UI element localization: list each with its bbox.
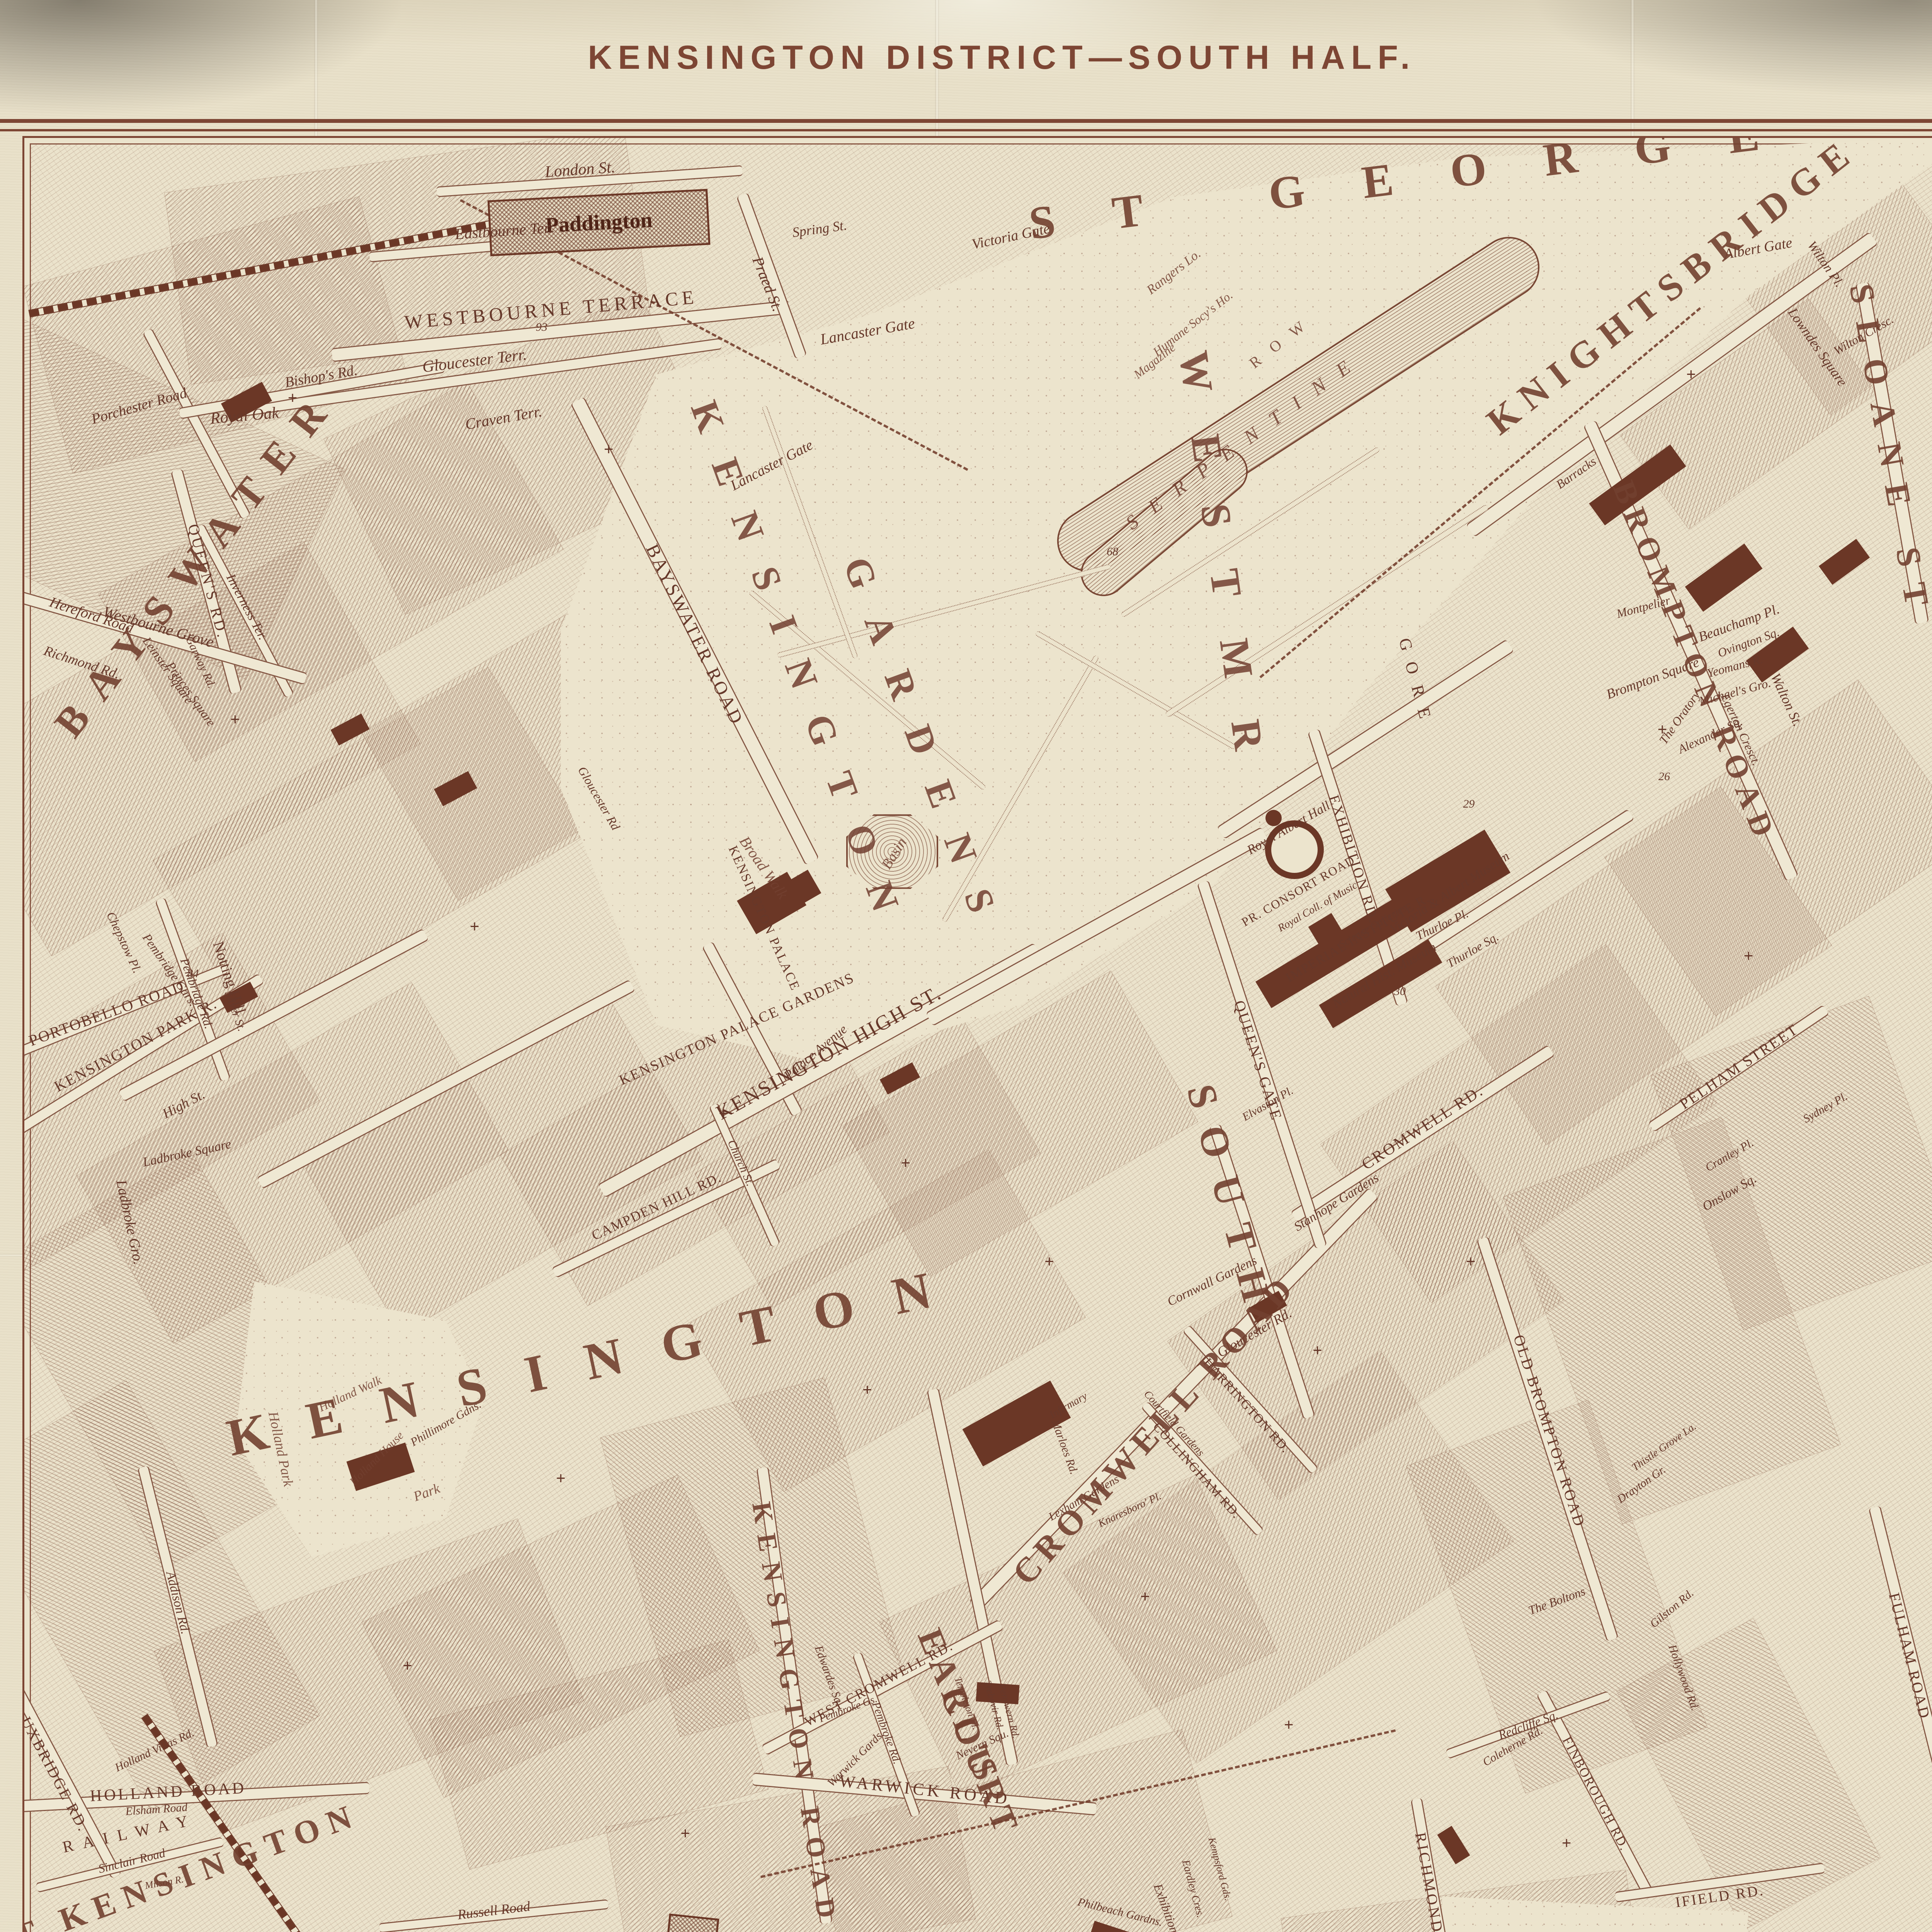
church-cross-icon: + xyxy=(1284,1715,1294,1735)
landmark-building xyxy=(1437,1826,1470,1865)
church-cross-icon: + xyxy=(901,1153,910,1173)
benchmark-number: 84 xyxy=(187,967,199,980)
church-cross-icon: + xyxy=(862,1380,872,1400)
map-label: Marloes Rd. xyxy=(1049,1418,1081,1476)
antique-map-page: { "page": { "title": "KENSINGTON DISTRIC… xyxy=(0,0,1932,1932)
map-title: KENSINGTON DISTRICT—SOUTH HALF. xyxy=(588,39,1416,77)
benchmark-number: 93 xyxy=(536,321,548,334)
church-cross-icon: + xyxy=(556,1469,566,1488)
map-label: Chepstow Pl. xyxy=(104,909,145,975)
church-cross-icon: + xyxy=(1686,365,1696,384)
church-cross-icon: + xyxy=(403,1656,412,1676)
church-cross-icon: + xyxy=(470,917,480,936)
church-cross-icon: + xyxy=(680,1823,690,1843)
church-cross-icon: + xyxy=(1044,1252,1054,1272)
map-label: FULHAM ROAD xyxy=(1885,1591,1932,1721)
landmark-building xyxy=(1685,544,1762,612)
church-cross-icon: + xyxy=(1744,946,1753,966)
church-cross-icon: + xyxy=(1140,1587,1150,1607)
map-canvas[interactable]: PaddingtonOLYMPIALondon St.Eastbourne Te… xyxy=(22,136,1932,1932)
church-cross-icon: + xyxy=(719,1104,728,1124)
benchmark-number: 26 xyxy=(1658,770,1670,783)
church-cross-icon: + xyxy=(230,710,240,730)
church-cross-icon: + xyxy=(1562,1833,1571,1853)
paddington-label: Paddington xyxy=(545,207,653,238)
map-label: EXHIBITION RD. xyxy=(1325,793,1383,926)
church-cross-icon: + xyxy=(1313,1340,1322,1360)
map-label: Spring St. xyxy=(791,217,847,240)
church-cross-icon: + xyxy=(1466,1252,1476,1272)
benchmark-number: 68 xyxy=(1107,545,1118,558)
church-cross-icon: + xyxy=(604,440,614,459)
albert-memorial xyxy=(1265,810,1282,826)
map-label: UXBRIDGE RD. xyxy=(22,1714,93,1835)
map-label: Walton St. xyxy=(1767,671,1806,729)
benchmark-number: 30 xyxy=(1394,985,1406,998)
landmark-building xyxy=(1819,539,1870,585)
church-cross-icon: + xyxy=(288,388,298,408)
benchmark-number: 29 xyxy=(1463,798,1475,811)
top-double-rule xyxy=(0,119,1932,123)
church-cross-icon: + xyxy=(1658,719,1667,739)
